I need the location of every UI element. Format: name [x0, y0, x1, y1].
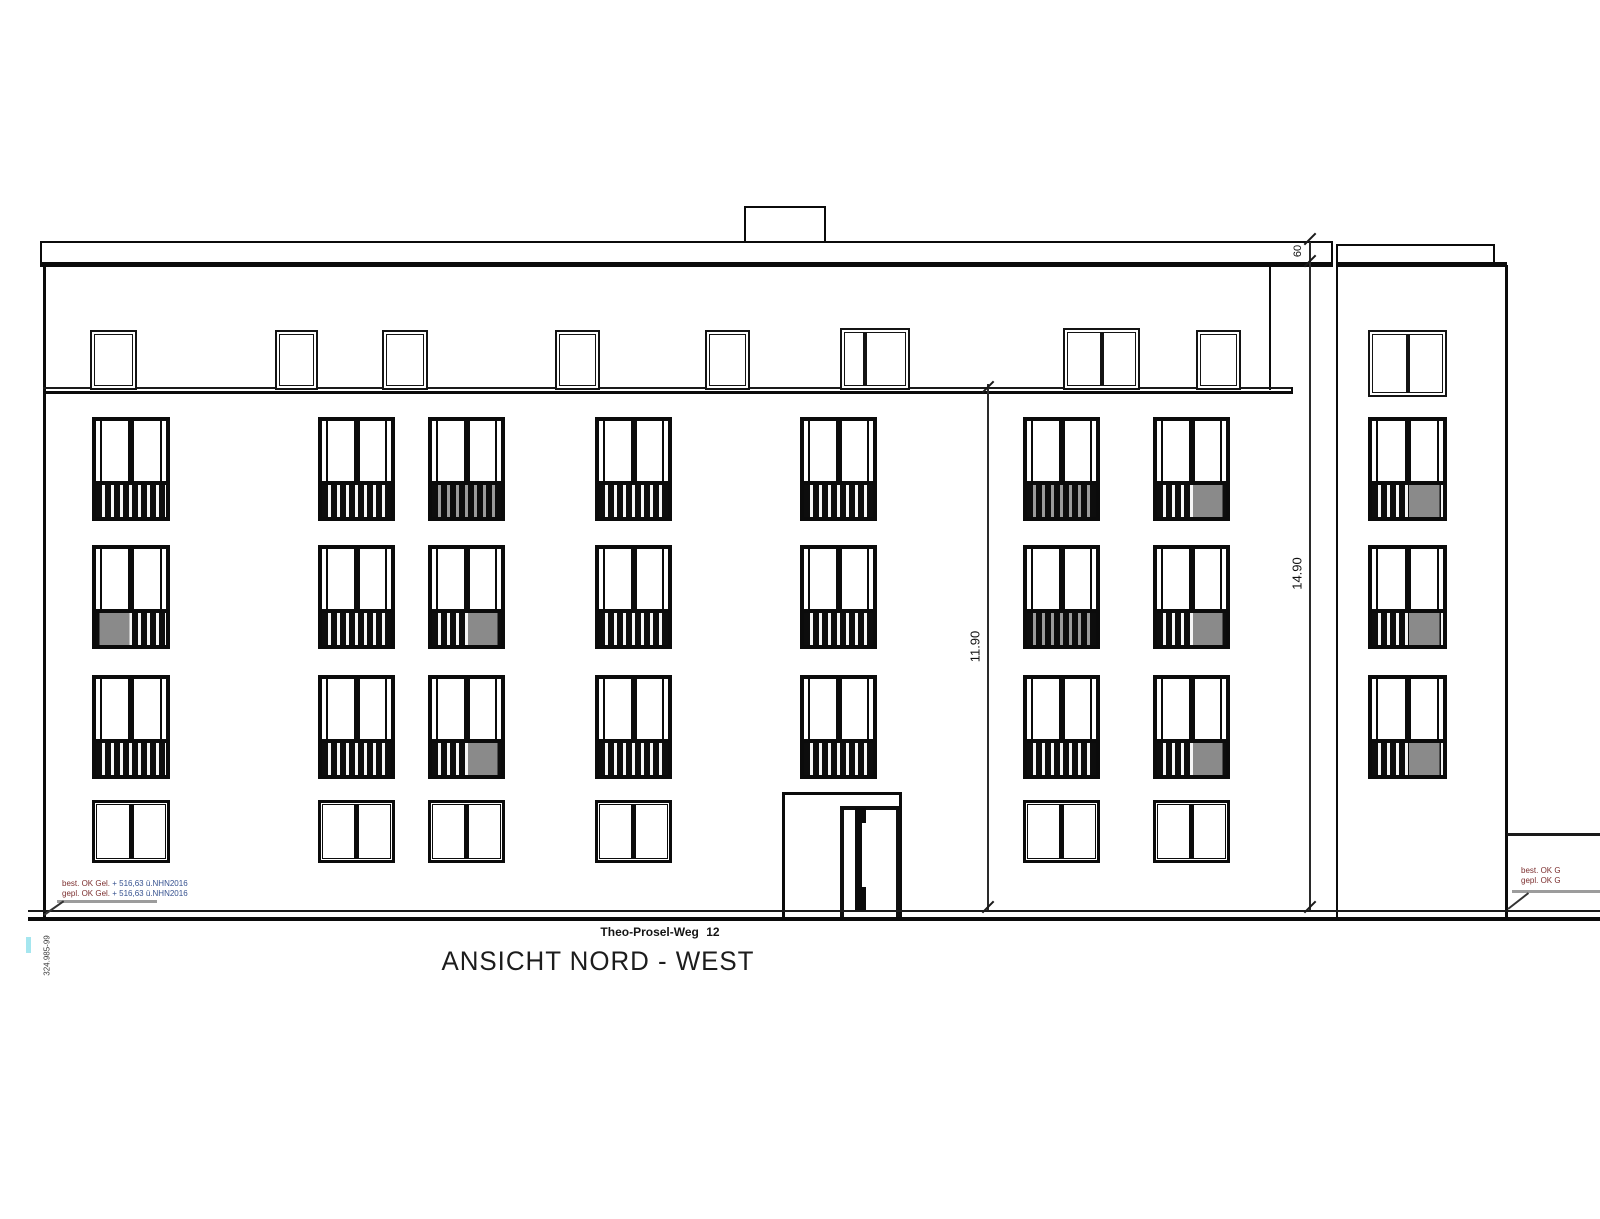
balcony-railing	[599, 609, 668, 645]
ground-note-left-line1: best. OK Gel. + 516,63 ü.NHN2016	[62, 879, 188, 889]
balcony-window	[1023, 545, 1100, 649]
window-panes	[1157, 679, 1226, 739]
right-parapet-band	[1336, 244, 1495, 267]
setback-ledge-lower-line	[43, 391, 1293, 394]
window-panes	[96, 421, 166, 481]
balcony-window	[1153, 417, 1230, 521]
window-panes	[1372, 549, 1443, 609]
balcony-window	[92, 417, 170, 521]
balcony-window	[428, 545, 505, 649]
window-panes	[322, 679, 391, 739]
survey-cyan-mark	[26, 937, 31, 953]
window-panes	[432, 679, 501, 739]
ground-note-left-leader	[43, 900, 64, 915]
balcony-railing	[599, 739, 668, 775]
balcony-railing	[1372, 481, 1443, 517]
balcony-railing	[804, 609, 873, 645]
setback-window	[90, 330, 137, 390]
annex-roof-line	[1507, 833, 1600, 836]
elevation-drawing: 11.90 60 14.90 best. OK Gel. + 516,63 ü.…	[0, 0, 1600, 1219]
dimension-line-total	[1309, 242, 1311, 912]
balcony-window	[595, 545, 672, 649]
balcony-window	[428, 417, 505, 521]
balcony-railing	[96, 609, 166, 645]
window-panes	[1372, 679, 1443, 739]
balcony-window	[1368, 417, 1447, 521]
balcony-railing	[804, 739, 873, 775]
dimension-label-facade: 11.90	[968, 617, 983, 677]
ground-window	[92, 800, 170, 863]
main-parapet-band	[40, 241, 1333, 267]
setback-window	[1196, 330, 1241, 390]
window-panes	[599, 679, 668, 739]
setback-floor-corner-edge	[1269, 267, 1271, 390]
window-panes	[322, 421, 391, 481]
balcony-window	[318, 545, 395, 649]
ground-note-left-line2: gepl. OK Gel. + 516,63 ü.NHN2016	[62, 889, 188, 899]
balcony-window	[92, 545, 170, 649]
balcony-window	[800, 417, 877, 521]
survey-benchmark-label: 324.985-99	[43, 920, 52, 992]
balcony-railing	[1027, 481, 1096, 517]
balcony-railing	[1372, 739, 1443, 775]
ground-note-left: best. OK Gel. + 516,63 ü.NHN2016 gepl. O…	[62, 879, 188, 899]
balcony-window	[1153, 545, 1230, 649]
setback-window	[382, 330, 428, 390]
ground-note-right-leader	[1507, 892, 1529, 910]
ground-note-left-underline	[57, 900, 157, 903]
left-facade-edge	[43, 265, 46, 917]
entrance-door-frame	[840, 806, 900, 917]
dimension-line-facade	[987, 384, 989, 912]
balcony-railing	[96, 481, 166, 517]
window-panes	[1027, 549, 1096, 609]
right-wing-left-edge	[1336, 267, 1338, 917]
balcony-railing	[1157, 609, 1226, 645]
balcony-railing	[1027, 739, 1096, 775]
balcony-railing	[432, 609, 501, 645]
ground-window	[1023, 800, 1100, 863]
ground-note-right: best. OK G gepl. OK G	[1521, 866, 1561, 886]
ground-window	[1153, 800, 1230, 863]
setback-window-double	[1368, 330, 1447, 397]
ground-window	[595, 800, 672, 863]
ground-line-upper	[28, 910, 1600, 912]
balcony-window	[1153, 675, 1230, 779]
balcony-railing	[322, 481, 391, 517]
dimension-label-parapet: 60	[1292, 236, 1304, 266]
setback-window-double	[840, 328, 910, 390]
balcony-window	[595, 417, 672, 521]
window-panes	[96, 679, 166, 739]
balcony-railing	[1157, 739, 1226, 775]
balcony-railing	[1027, 609, 1096, 645]
balcony-window	[595, 675, 672, 779]
window-panes	[432, 549, 501, 609]
balcony-railing	[1157, 481, 1226, 517]
window-panes	[432, 421, 501, 481]
balcony-window	[1023, 675, 1100, 779]
setback-ledge-lip	[1291, 387, 1293, 394]
window-panes	[96, 549, 166, 609]
balcony-railing	[599, 481, 668, 517]
window-panes	[804, 549, 873, 609]
balcony-railing	[1372, 609, 1443, 645]
balcony-window	[800, 545, 877, 649]
balcony-railing	[322, 609, 391, 645]
door-leaf-notch	[862, 823, 867, 887]
window-panes	[1027, 679, 1096, 739]
ground-note-right-line2: gepl. OK G	[1521, 876, 1561, 886]
balcony-window	[1023, 417, 1100, 521]
balcony-railing	[322, 739, 391, 775]
setback-window	[555, 330, 600, 390]
balcony-railing	[96, 739, 166, 775]
balcony-window	[428, 675, 505, 779]
balcony-window	[318, 417, 395, 521]
window-panes	[599, 421, 668, 481]
drawing-title: ANSICHT NORD - WEST	[435, 946, 761, 977]
window-panes	[599, 549, 668, 609]
window-panes	[1027, 421, 1096, 481]
balcony-window	[800, 675, 877, 779]
window-panes	[1372, 421, 1443, 481]
roof-access-box	[744, 206, 826, 242]
setback-window-double	[1063, 328, 1140, 390]
ground-line-lower	[28, 917, 1600, 921]
ground-note-right-line1: best. OK G	[1521, 866, 1561, 876]
window-panes	[804, 679, 873, 739]
setback-window	[275, 330, 318, 390]
dimension-label-total: 14.90	[1290, 544, 1305, 604]
setback-window	[705, 330, 750, 390]
ground-window	[318, 800, 395, 863]
right-wing-right-edge	[1505, 265, 1508, 917]
balcony-window	[318, 675, 395, 779]
balcony-window	[1368, 675, 1447, 779]
street-label: Theo-Prosel-Weg 12	[555, 925, 765, 939]
balcony-railing	[804, 481, 873, 517]
balcony-window	[1368, 545, 1447, 649]
balcony-window	[92, 675, 170, 779]
window-panes	[322, 549, 391, 609]
balcony-railing	[432, 481, 501, 517]
window-panes	[804, 421, 873, 481]
balcony-railing	[432, 739, 501, 775]
window-panes	[1157, 549, 1226, 609]
window-panes	[1157, 421, 1226, 481]
ground-window	[428, 800, 505, 863]
